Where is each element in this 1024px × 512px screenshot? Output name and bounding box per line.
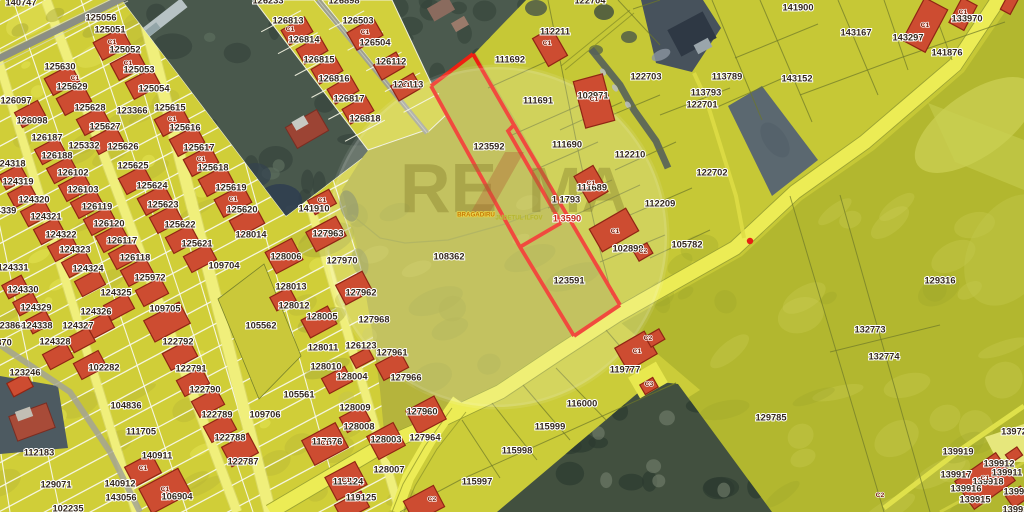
svg-text:139914: 139914 (1003, 486, 1024, 496)
svg-text:139917: 139917 (940, 469, 971, 479)
svg-text:128003: 128003 (370, 434, 401, 444)
svg-text:126815: 126815 (303, 54, 334, 64)
svg-text:126098: 126098 (16, 115, 47, 125)
svg-text:126188: 126188 (41, 150, 72, 160)
svg-text:128004: 128004 (336, 371, 368, 381)
svg-text:128007: 128007 (373, 464, 404, 474)
svg-text:125630: 125630 (44, 61, 75, 71)
svg-text:C1: C1 (197, 156, 206, 163)
svg-text:108362: 108362 (433, 251, 464, 261)
svg-text:125056: 125056 (85, 12, 116, 22)
svg-text:JUDETUL ILFOV: JUDETUL ILFOV (496, 216, 543, 222)
svg-text:125626: 125626 (107, 141, 138, 151)
svg-text:126818: 126818 (349, 113, 380, 123)
svg-text:C1: C1 (587, 180, 596, 187)
svg-text:126504: 126504 (359, 37, 391, 47)
svg-text:125615: 125615 (154, 102, 185, 112)
svg-text:125624: 125624 (136, 180, 168, 190)
svg-text:128013: 128013 (275, 281, 306, 291)
svg-text:132774: 132774 (868, 351, 900, 361)
svg-text:124321: 124321 (30, 211, 61, 221)
svg-text:109704: 109704 (208, 260, 240, 270)
svg-text:124318: 124318 (0, 158, 26, 168)
svg-text:115999: 115999 (535, 421, 566, 431)
svg-text:125620: 125620 (226, 204, 257, 214)
svg-text:125972: 125972 (134, 272, 165, 282)
svg-text:139913: 139913 (1002, 504, 1024, 512)
svg-text:126103: 126103 (67, 184, 98, 194)
svg-text:124320: 124320 (18, 194, 49, 204)
svg-text:128009: 128009 (339, 402, 370, 412)
svg-text:126817: 126817 (333, 93, 364, 103)
svg-text:124325: 124325 (100, 287, 131, 297)
svg-text:125625: 125625 (117, 160, 148, 170)
svg-text:123592: 123592 (473, 141, 504, 151)
svg-text:102235: 102235 (52, 503, 83, 512)
svg-text:C1: C1 (342, 477, 351, 484)
svg-text:123591: 123591 (553, 275, 584, 285)
svg-text:C1: C1 (981, 475, 990, 482)
svg-text:123366: 123366 (116, 105, 147, 115)
svg-text:139915: 139915 (959, 494, 990, 504)
svg-text:C1: C1 (959, 9, 968, 16)
svg-text:143152: 143152 (781, 73, 812, 83)
svg-text:127968: 127968 (358, 314, 389, 324)
svg-text:125628: 125628 (74, 102, 105, 112)
svg-text:124324: 124324 (72, 263, 104, 273)
svg-text:125623: 125623 (147, 199, 178, 209)
svg-text:C2: C2 (876, 492, 885, 499)
svg-text:122788: 122788 (214, 432, 245, 442)
svg-text:128006: 128006 (270, 251, 301, 261)
svg-text:127966: 127966 (390, 372, 421, 382)
svg-text:112210: 112210 (615, 149, 646, 159)
svg-text:143167: 143167 (840, 27, 871, 37)
svg-text:C1: C1 (139, 465, 148, 472)
svg-text:104836: 104836 (110, 400, 141, 410)
svg-text:119777: 119777 (610, 364, 641, 374)
svg-text:124338: 124338 (21, 320, 52, 330)
svg-text:C1: C1 (286, 26, 295, 33)
svg-text:127962: 127962 (345, 287, 376, 297)
svg-text:125051: 125051 (94, 24, 125, 34)
svg-text:124331: 124331 (0, 262, 29, 272)
svg-text:125621: 125621 (181, 238, 212, 248)
svg-text:105561: 105561 (283, 389, 314, 399)
svg-text:105562: 105562 (245, 320, 276, 330)
svg-text:126503: 126503 (342, 15, 373, 25)
svg-text:106904: 106904 (161, 491, 193, 501)
svg-text:C1: C1 (633, 348, 642, 355)
svg-text:122789: 122789 (201, 409, 232, 419)
svg-text:C1: C1 (543, 40, 552, 47)
svg-text:126120: 126120 (93, 218, 124, 228)
svg-text:125616: 125616 (169, 122, 200, 132)
svg-text:128005: 128005 (306, 311, 337, 321)
svg-text:126898: 126898 (328, 0, 359, 5)
svg-text:113793: 113793 (691, 87, 722, 97)
svg-text:124327: 124327 (62, 320, 93, 330)
svg-text:1 3590: 1 3590 (553, 213, 581, 223)
svg-text:129316: 129316 (924, 275, 955, 285)
svg-text:C1: C1 (161, 486, 170, 493)
svg-text:C2: C2 (428, 496, 437, 503)
svg-text:122701: 122701 (686, 99, 717, 109)
svg-text:129071: 129071 (40, 479, 71, 489)
svg-text:C1: C1 (402, 82, 411, 89)
svg-text:C1: C1 (921, 22, 930, 29)
svg-text:1 1793: 1 1793 (552, 194, 580, 204)
svg-text:C1: C1 (361, 29, 370, 36)
svg-text:126117: 126117 (107, 235, 138, 245)
svg-text:124319: 124319 (2, 176, 33, 186)
svg-text:141876: 141876 (931, 47, 962, 57)
svg-text:141900: 141900 (782, 2, 813, 12)
svg-text:125618: 125618 (197, 162, 228, 172)
svg-text:112211: 112211 (540, 26, 570, 36)
svg-text:126187: 126187 (31, 132, 62, 142)
svg-text:C1: C1 (590, 96, 599, 103)
svg-text:122704: 122704 (574, 0, 606, 5)
svg-text:128011: 128011 (308, 342, 339, 352)
svg-text:128010: 128010 (310, 361, 341, 371)
svg-text:124329: 124329 (20, 302, 51, 312)
svg-text:127961: 127961 (376, 347, 407, 357)
svg-text:126816: 126816 (318, 73, 349, 83)
svg-text:116000: 116000 (567, 398, 598, 408)
svg-text:C3: C3 (645, 381, 654, 388)
svg-text:109706: 109706 (249, 409, 280, 419)
svg-text:127964: 127964 (409, 432, 441, 442)
svg-text:126233: 126233 (252, 0, 283, 5)
svg-text:111692: 111692 (495, 54, 525, 64)
svg-text:140747: 140747 (5, 0, 36, 7)
svg-text:C1: C1 (318, 197, 327, 204)
svg-text:119125: 119125 (346, 492, 377, 502)
svg-text:C1: C1 (321, 440, 330, 447)
svg-text:111691: 111691 (523, 95, 553, 105)
svg-text:C1: C1 (124, 60, 133, 67)
svg-text:13972: 13972 (1001, 426, 1024, 436)
svg-text:112183: 112183 (24, 447, 55, 457)
svg-text:C1: C1 (168, 116, 177, 123)
svg-text:143297: 143297 (892, 32, 923, 42)
svg-text:139916: 139916 (950, 483, 981, 493)
svg-text:128014: 128014 (235, 229, 267, 239)
svg-text:126813: 126813 (272, 15, 303, 25)
svg-text:123246: 123246 (9, 367, 40, 377)
svg-text:122791: 122791 (175, 363, 206, 373)
svg-text:128012: 128012 (278, 300, 309, 310)
svg-text:140912: 140912 (104, 478, 135, 488)
svg-text:126097: 126097 (0, 95, 31, 105)
svg-text:125619: 125619 (215, 182, 246, 192)
svg-text:C1: C1 (229, 196, 238, 203)
svg-text:C1: C1 (71, 75, 80, 82)
svg-text:125054: 125054 (138, 83, 170, 93)
svg-text:143056: 143056 (105, 492, 136, 502)
svg-text:126814: 126814 (288, 34, 320, 44)
svg-text:129785: 129785 (755, 412, 786, 422)
svg-text:122790: 122790 (189, 384, 220, 394)
svg-text:125629: 125629 (56, 81, 87, 91)
svg-text:115997: 115997 (462, 476, 493, 486)
svg-text:140911: 140911 (142, 450, 173, 460)
svg-text:115998: 115998 (502, 445, 533, 455)
svg-text:112209: 112209 (645, 198, 676, 208)
svg-text:122787: 122787 (227, 456, 258, 466)
svg-text:127963: 127963 (312, 228, 343, 238)
svg-text:4339: 4339 (0, 205, 16, 215)
svg-text:124330: 124330 (7, 284, 38, 294)
svg-text:C1: C1 (108, 39, 117, 46)
svg-text:124326: 124326 (80, 306, 111, 316)
svg-text:125627: 125627 (89, 121, 120, 131)
svg-text:124323: 124323 (59, 244, 90, 254)
svg-text:126118: 126118 (120, 252, 151, 262)
svg-text:126112: 126112 (376, 56, 407, 66)
svg-text:125052: 125052 (109, 44, 140, 54)
svg-text:102282: 102282 (88, 362, 119, 372)
svg-text:127970: 127970 (326, 255, 357, 265)
svg-text:109705: 109705 (149, 303, 180, 313)
svg-text:139919: 139919 (942, 446, 973, 456)
svg-text:BRAGADIRU: BRAGADIRU (457, 212, 495, 219)
svg-text:124328: 124328 (39, 336, 70, 346)
svg-text:C1: C1 (611, 228, 620, 235)
svg-text:105782: 105782 (671, 239, 702, 249)
svg-text:126102: 126102 (57, 167, 88, 177)
svg-text:C2: C2 (639, 248, 648, 255)
svg-text:122792: 122792 (162, 336, 193, 346)
svg-text:125622: 125622 (164, 219, 195, 229)
svg-text:132773: 132773 (854, 324, 885, 334)
svg-text:125617: 125617 (183, 142, 214, 152)
svg-text:126119: 126119 (82, 201, 113, 211)
svg-text:122702: 122702 (696, 167, 727, 177)
svg-text:111705: 111705 (126, 426, 156, 436)
svg-text:126123: 126123 (345, 340, 376, 350)
svg-text:870: 870 (0, 337, 12, 347)
svg-text:128008: 128008 (343, 421, 374, 431)
svg-text:111690: 111690 (552, 139, 582, 149)
svg-text:122703: 122703 (630, 71, 661, 81)
svg-text:124322: 124322 (45, 229, 76, 239)
svg-text:127960: 127960 (406, 406, 437, 416)
svg-text:C2: C2 (644, 335, 653, 342)
svg-text:141910: 141910 (298, 203, 329, 213)
svg-text:125332: 125332 (68, 140, 99, 150)
svg-text:113789: 113789 (712, 71, 743, 81)
